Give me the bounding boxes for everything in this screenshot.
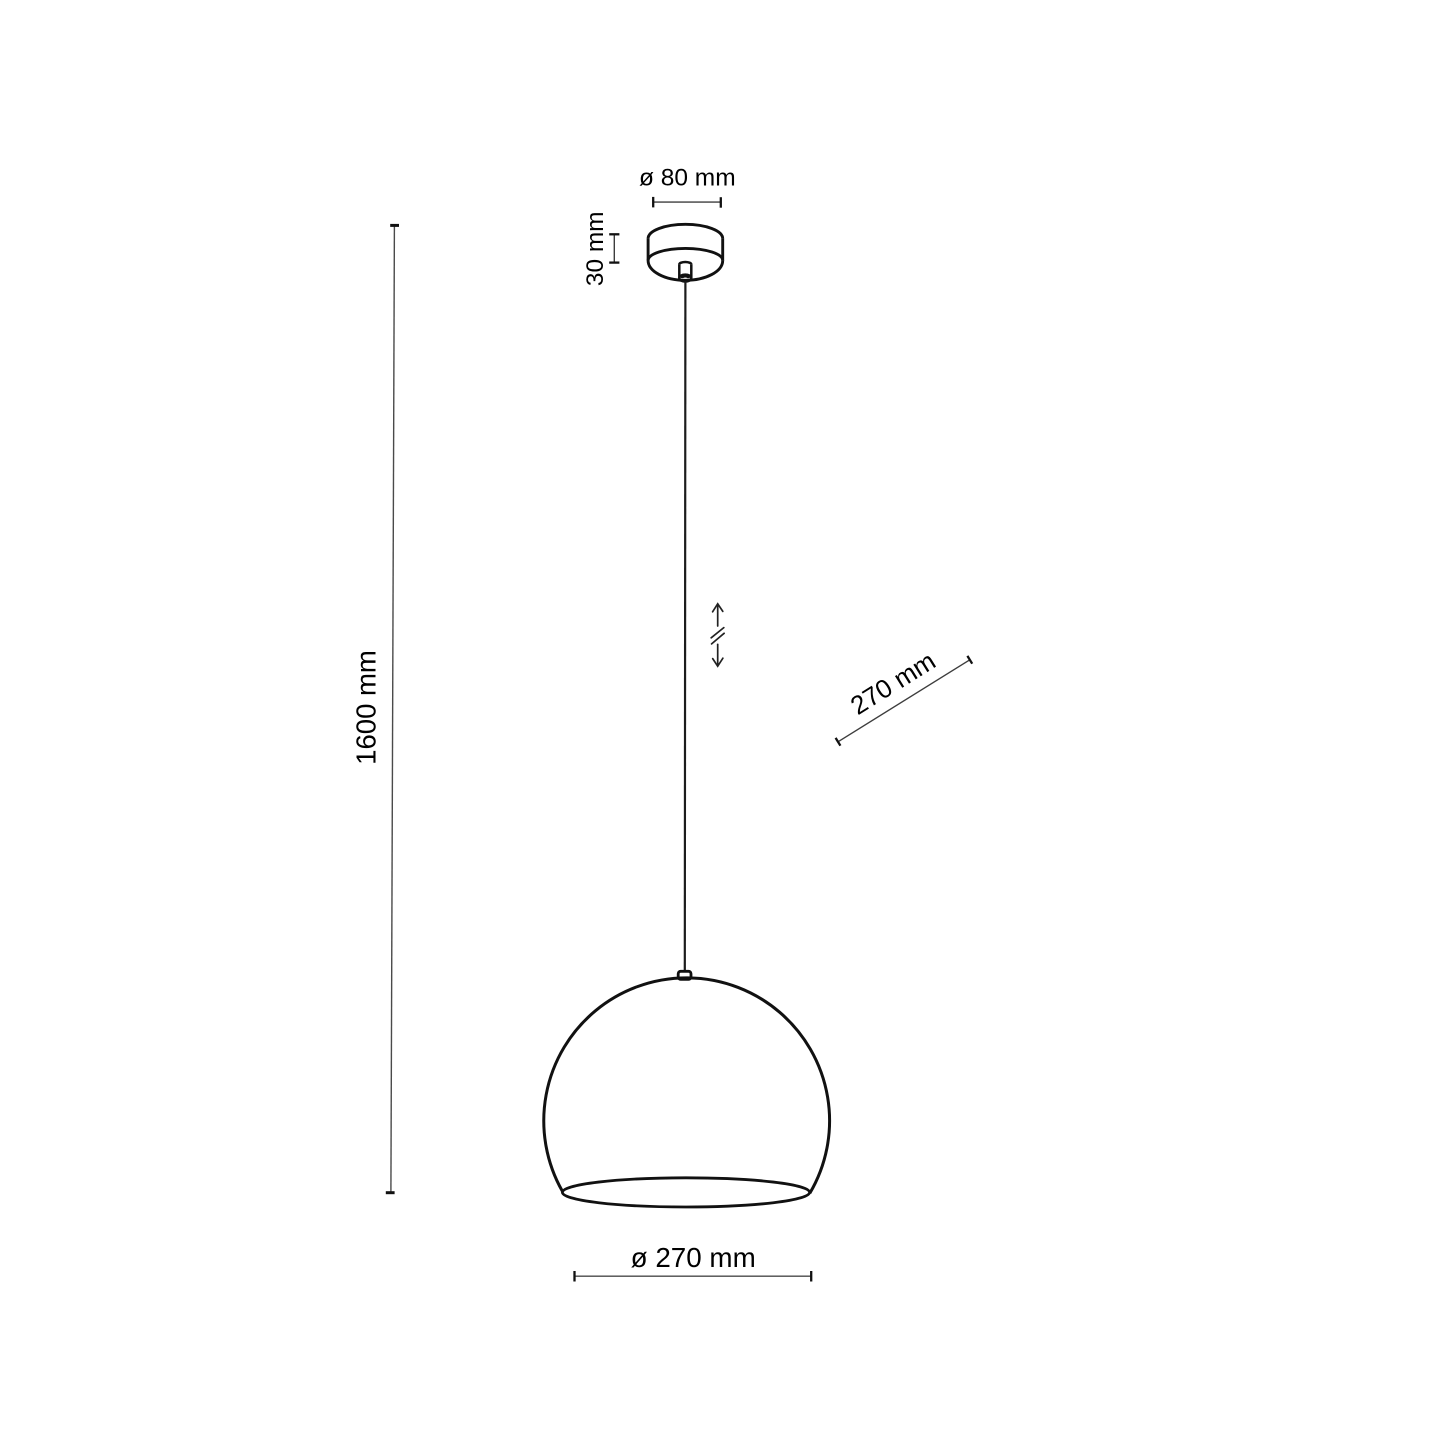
svg-text:ø 270 mm: ø 270 mm xyxy=(631,1242,756,1273)
svg-text:30 mm: 30 mm xyxy=(582,212,609,287)
svg-text:ø 80 mm: ø 80 mm xyxy=(639,165,736,192)
svg-text:1600 mm: 1600 mm xyxy=(351,650,382,765)
